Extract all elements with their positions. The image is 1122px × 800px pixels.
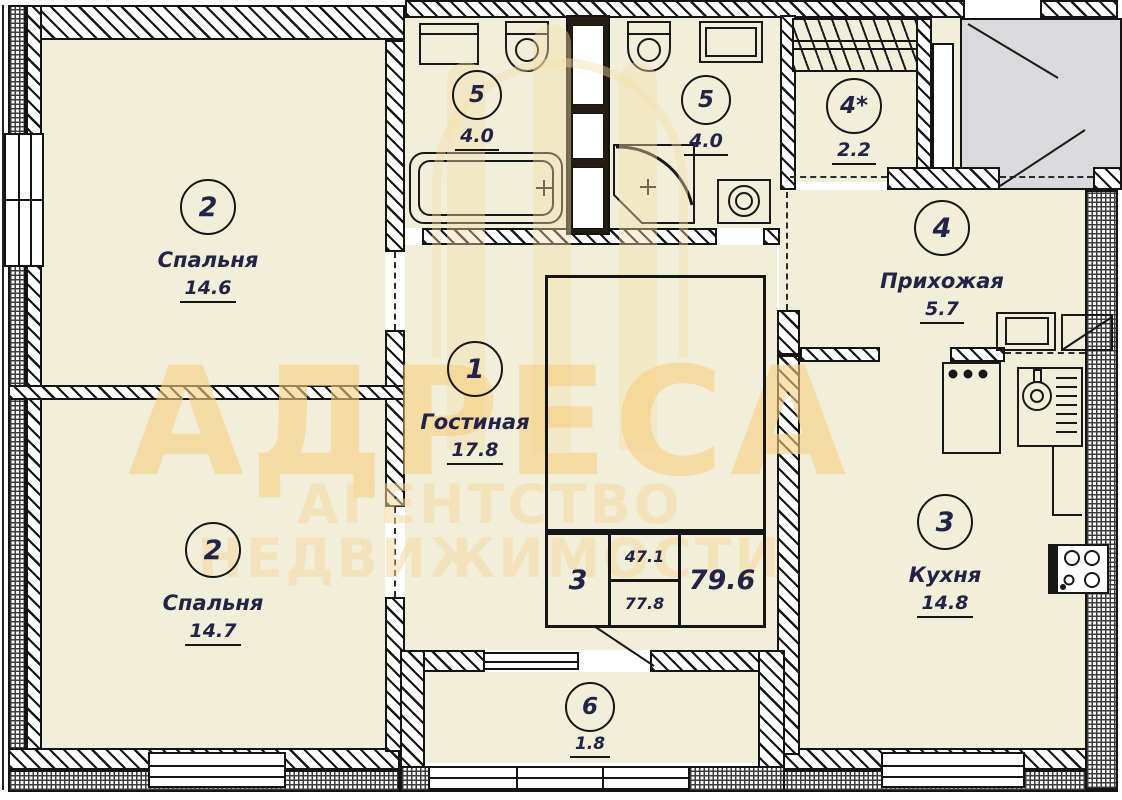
washing-machine-icon (718, 180, 770, 223)
room-name: Кухня (865, 563, 1025, 587)
balcony-door-swing-line (594, 626, 654, 666)
fridge-icon (1062, 315, 1112, 350)
label-closet: 4* 2.2 (774, 78, 934, 165)
stamp-table: 3 47.1 77.8 79.6 (545, 532, 766, 628)
toilet-icon (506, 22, 548, 71)
room-name: Гостиная (395, 410, 555, 434)
label-balcony: 6 1.8 (510, 682, 670, 758)
bathtub-icon (410, 153, 562, 223)
toilet-icon (628, 22, 670, 71)
room-area: 14.6 (180, 277, 237, 303)
room-area: 2.2 (832, 139, 876, 165)
floor-plan: АДРЕСА АГЕНТСТВО НЕДВИЖИМОСТИ 2 Спальня … (0, 0, 1122, 800)
stamp-floor-area: 77.8 (611, 582, 678, 626)
label-kitchen: 3 Кухня 14.8 (865, 494, 1025, 618)
room-number: 2 (180, 179, 236, 235)
room-number: 4 (914, 200, 970, 256)
room-area: 17.8 (447, 439, 504, 465)
label-living: 1 Гостиная 17.8 (395, 341, 555, 465)
kitchen-sink-icon (1018, 368, 1082, 446)
entry-door-swing-line (968, 24, 1085, 186)
stove-icon (943, 363, 1000, 453)
room-name: Спальня (128, 248, 288, 272)
room-area: 14.7 (185, 620, 242, 646)
sink-icon (700, 22, 762, 62)
stamp-living-area: 47.1 (611, 535, 678, 582)
label-bedroom-bottom: 2 Спальня 14.7 (133, 522, 293, 646)
hob-icon (1049, 545, 1108, 593)
room-area: 1.8 (570, 734, 610, 758)
room-number: 5 (452, 70, 502, 120)
stamp-box (545, 275, 766, 532)
room-number: 5 (681, 75, 731, 125)
room-area: 5.7 (920, 298, 964, 324)
room-name: Спальня (133, 591, 293, 615)
room-number: 4* (826, 78, 882, 134)
room-name: Прихожая (862, 269, 1022, 293)
label-bath-left: 5 4.0 (397, 70, 557, 151)
room-area: 4.0 (455, 125, 499, 151)
room-area: 14.8 (917, 592, 974, 618)
room-area: 4.0 (684, 130, 728, 156)
kitchen-counter-line (1053, 446, 1082, 515)
stamp-rooms-count: 3 (548, 535, 611, 625)
label-hallway: 4 Прихожая 5.7 (862, 200, 1022, 324)
label-bedroom-top: 2 Спальня 14.6 (128, 179, 288, 303)
room-number: 1 (447, 341, 503, 397)
room-number: 6 (565, 682, 615, 732)
sink-icon (420, 24, 478, 64)
label-bath-right: 5 4.0 (626, 75, 786, 156)
stamp-total-area: 79.6 (681, 535, 763, 625)
room-number: 3 (917, 494, 973, 550)
shower-icon (614, 145, 694, 223)
room-number: 2 (185, 522, 241, 578)
